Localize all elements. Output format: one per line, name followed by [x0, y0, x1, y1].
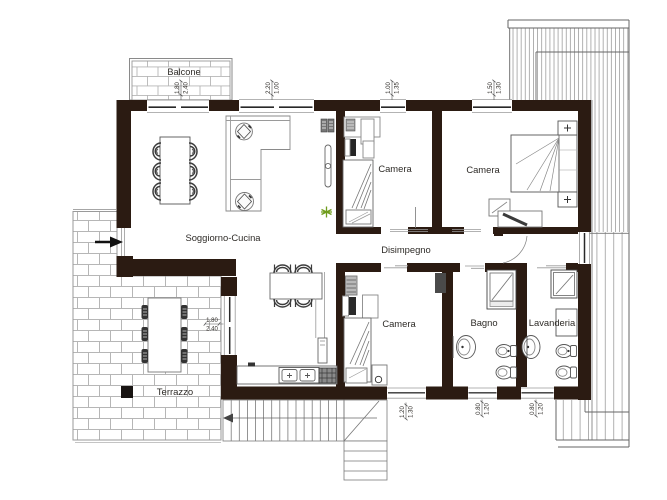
svg-text:Camera: Camera: [466, 164, 500, 175]
svg-text:1.30: 1.30: [497, 82, 503, 94]
svg-text:1.35: 1.35: [395, 82, 401, 94]
svg-text:1.80: 1.80: [206, 318, 218, 324]
svg-text:Soggiorno-Cucina: Soggiorno-Cucina: [185, 232, 261, 243]
svg-text:2.40: 2.40: [206, 327, 218, 333]
svg-text:Camera: Camera: [382, 318, 416, 329]
svg-text:Lavanderia: Lavanderia: [529, 317, 576, 328]
svg-text:2.20: 2.20: [266, 82, 272, 94]
svg-text:1.80: 1.80: [175, 82, 181, 94]
svg-text:1.30: 1.30: [409, 406, 415, 418]
svg-text:Balcone: Balcone: [167, 67, 200, 77]
svg-text:Camera: Camera: [378, 163, 412, 174]
svg-text:1.50: 1.50: [488, 82, 494, 94]
svg-text:Terrazzo: Terrazzo: [157, 387, 193, 398]
svg-text:Bagno: Bagno: [470, 317, 497, 328]
svg-text:0.80: 0.80: [530, 403, 536, 415]
svg-text:Disimpegno: Disimpegno: [381, 244, 431, 255]
svg-text:0.80: 0.80: [476, 403, 482, 415]
svg-text:1.00: 1.00: [275, 82, 281, 94]
svg-text:1.00: 1.00: [386, 82, 392, 94]
svg-text:2.40: 2.40: [184, 82, 190, 94]
svg-text:1.20: 1.20: [539, 403, 545, 415]
svg-text:1.20: 1.20: [400, 406, 406, 418]
svg-text:1.20: 1.20: [485, 403, 491, 415]
